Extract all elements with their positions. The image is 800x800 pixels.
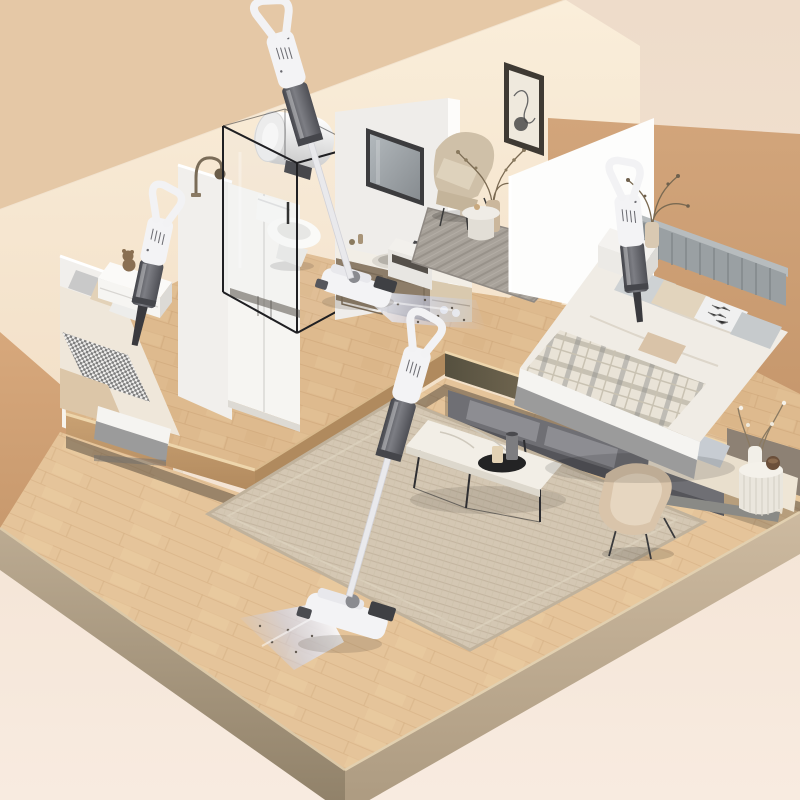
abstract-wall-art <box>504 62 544 156</box>
product-render-image <box>0 0 800 800</box>
